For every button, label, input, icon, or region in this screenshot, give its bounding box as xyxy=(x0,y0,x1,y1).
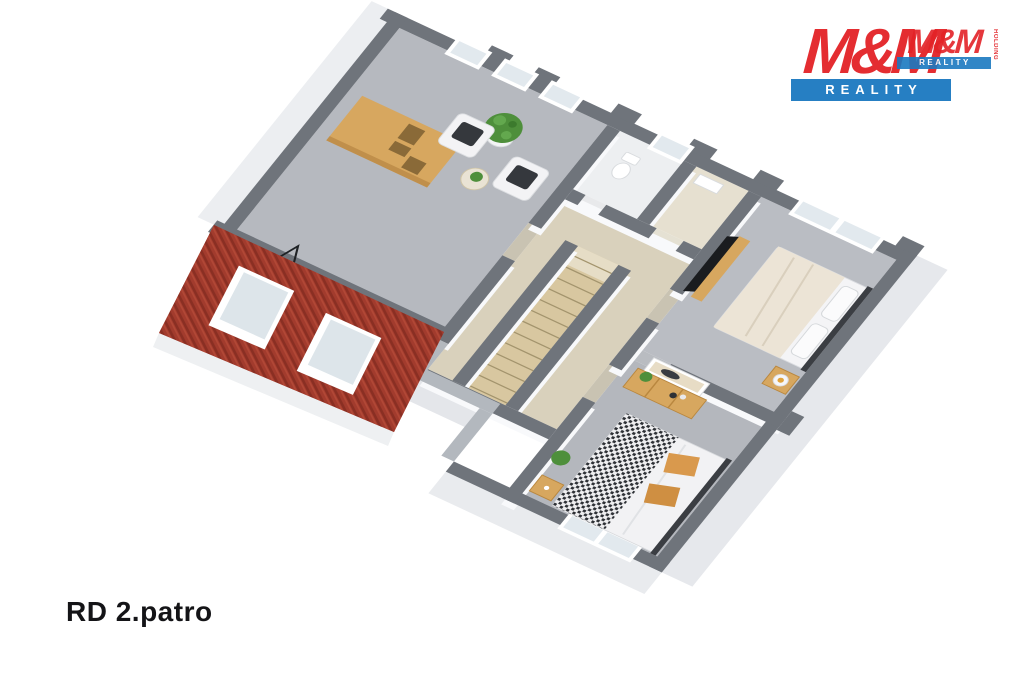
watermark-side-text: HOLDING xyxy=(992,29,998,60)
floor-plan-page: M&M REALITY M&M REALITY HOLDING RD 2.pat… xyxy=(0,0,1024,683)
floor-label: RD 2.patro xyxy=(66,596,213,628)
floor-plan-rendering xyxy=(0,0,1024,683)
mm-reality-watermark-logo: M&M REALITY HOLDING xyxy=(897,27,991,69)
watermark-wordmark: M&M xyxy=(896,27,992,58)
